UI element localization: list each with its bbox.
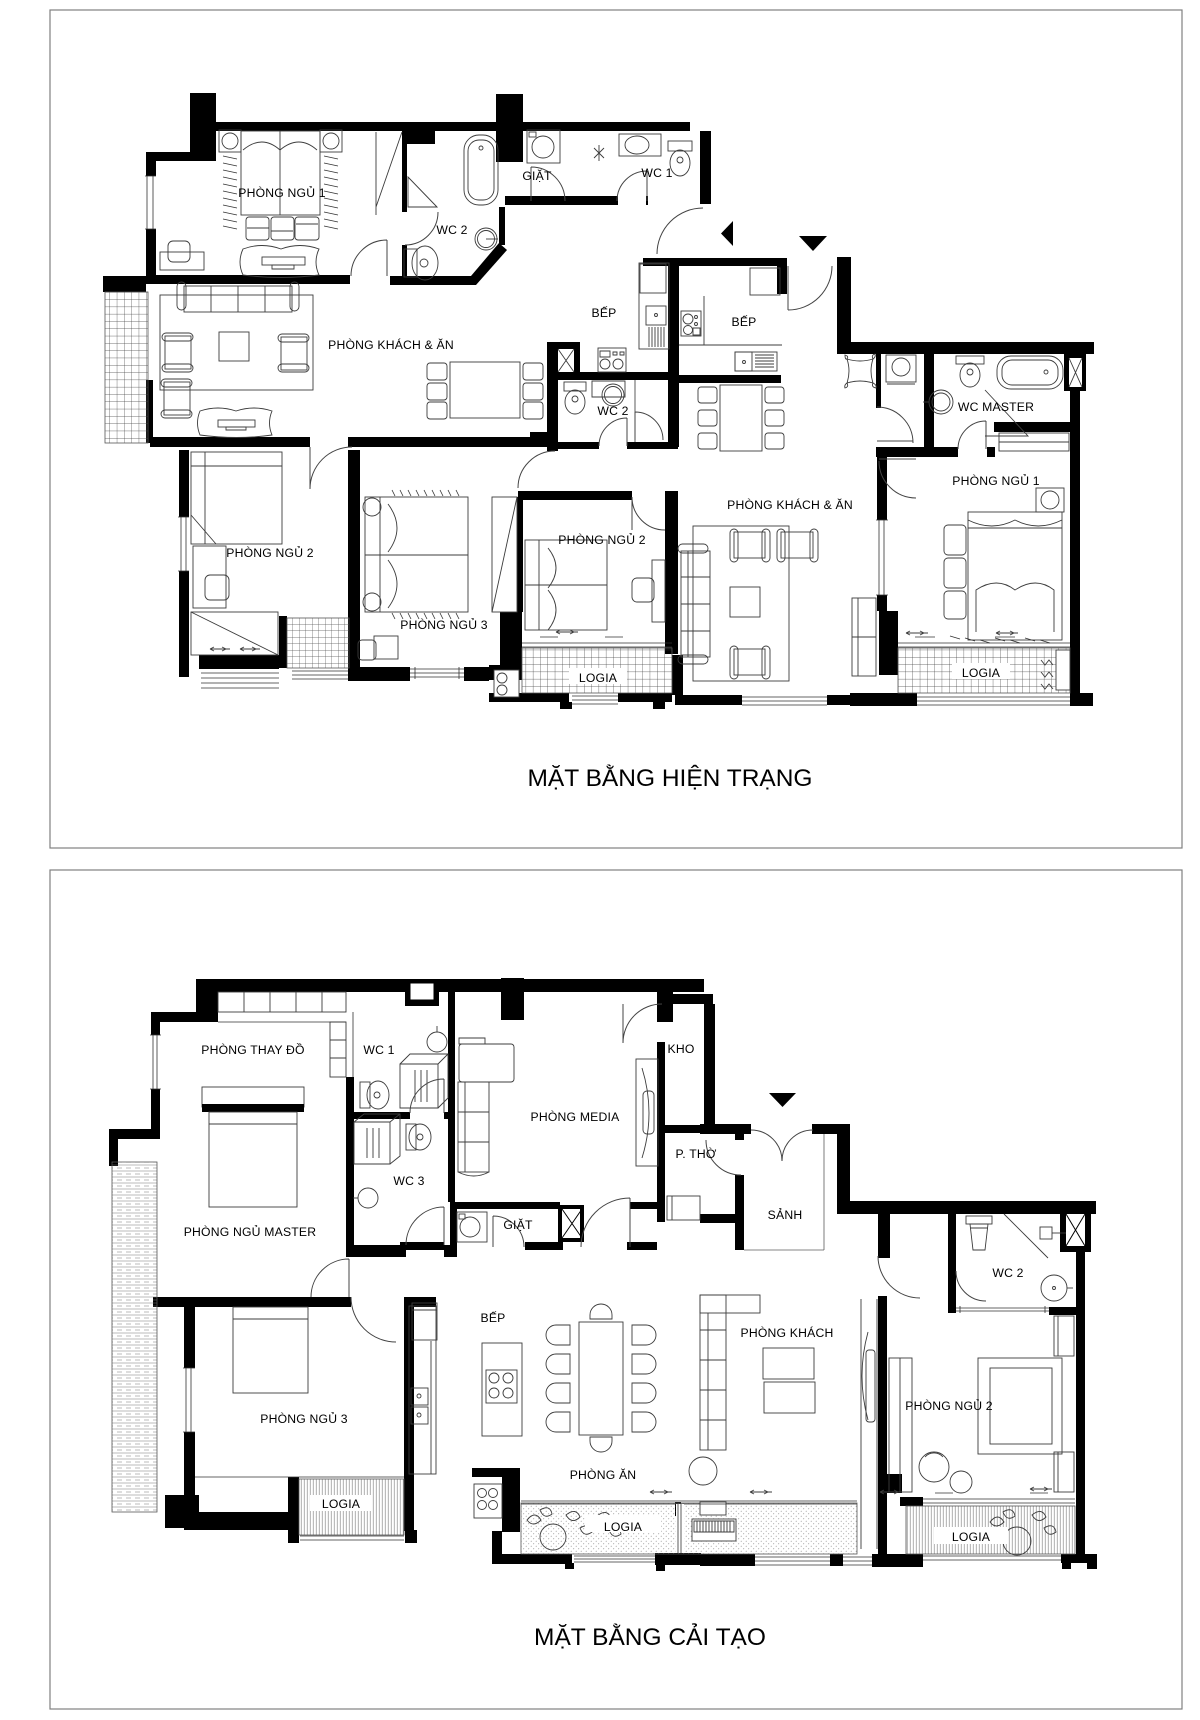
svg-text:GIẶT: GIẶT [503, 1217, 533, 1232]
svg-text:PHÒNG NGỦ 3: PHÒNG NGỦ 3 [400, 617, 488, 632]
svg-text:PHÒNG NGỦ 3: PHÒNG NGỦ 3 [260, 1411, 348, 1426]
svg-text:PHÒNG NGỦ 2: PHÒNG NGỦ 2 [558, 532, 646, 547]
svg-text:PHÒNG KHÁCH: PHÒNG KHÁCH [741, 1325, 834, 1340]
svg-text:LOGIA: LOGIA [952, 1530, 991, 1544]
svg-text:LOGIA: LOGIA [962, 666, 1001, 680]
svg-text:PHÒNG NGỦ MASTER: PHÒNG NGỦ MASTER [184, 1224, 317, 1239]
svg-text:PHÒNG NGỦ 1: PHÒNG NGỦ 1 [238, 185, 326, 200]
svg-text:PHÒNG NGỦ 2: PHÒNG NGỦ 2 [226, 545, 314, 560]
svg-text:BẾP: BẾP [481, 1310, 506, 1325]
svg-text:WC 1: WC 1 [363, 1043, 394, 1057]
svg-text:MẶT BẰNG HIỆN TRẠNG: MẶT BẰNG HIỆN TRẠNG [528, 764, 813, 792]
svg-text:WC 2: WC 2 [597, 404, 628, 418]
svg-text:KHO: KHO [667, 1042, 694, 1056]
svg-text:PHÒNG MEDIA: PHÒNG MEDIA [531, 1109, 621, 1124]
svg-text:PHÒNG KHÁCH & ĂN: PHÒNG KHÁCH & ĂN [727, 497, 853, 512]
svg-text:LOGIA: LOGIA [322, 1497, 361, 1511]
svg-text:WC MASTER: WC MASTER [958, 400, 1034, 414]
svg-text:PHÒNG THAY ĐỒ: PHÒNG THAY ĐỒ [201, 1042, 305, 1057]
svg-text:SẢNH: SẢNH [768, 1207, 803, 1222]
svg-text:PHÒNG ĂN: PHÒNG ĂN [570, 1467, 637, 1482]
svg-text:WC 2: WC 2 [992, 1266, 1023, 1280]
svg-text:PHÒNG KHÁCH & ĂN: PHÒNG KHÁCH & ĂN [328, 337, 454, 352]
svg-text:MẶT BẰNG CẢI TẠO: MẶT BẰNG CẢI TẠO [534, 1622, 766, 1651]
svg-text:BẾP: BẾP [732, 314, 757, 329]
svg-text:P. THỜ: P. THỜ [675, 1146, 716, 1161]
svg-text:LOGIA: LOGIA [604, 1520, 643, 1534]
svg-text:BẾP: BẾP [592, 305, 617, 320]
svg-text:GIẶT: GIẶT [522, 168, 552, 183]
svg-text:WC 3: WC 3 [393, 1174, 424, 1188]
svg-text:PHÒNG NGỦ 2: PHÒNG NGỦ 2 [905, 1398, 993, 1413]
svg-text:WC 1: WC 1 [641, 166, 672, 180]
svg-text:PHÒNG NGỦ 1: PHÒNG NGỦ 1 [952, 473, 1040, 488]
svg-text:WC 2: WC 2 [436, 223, 467, 237]
svg-text:LOGIA: LOGIA [579, 671, 618, 685]
